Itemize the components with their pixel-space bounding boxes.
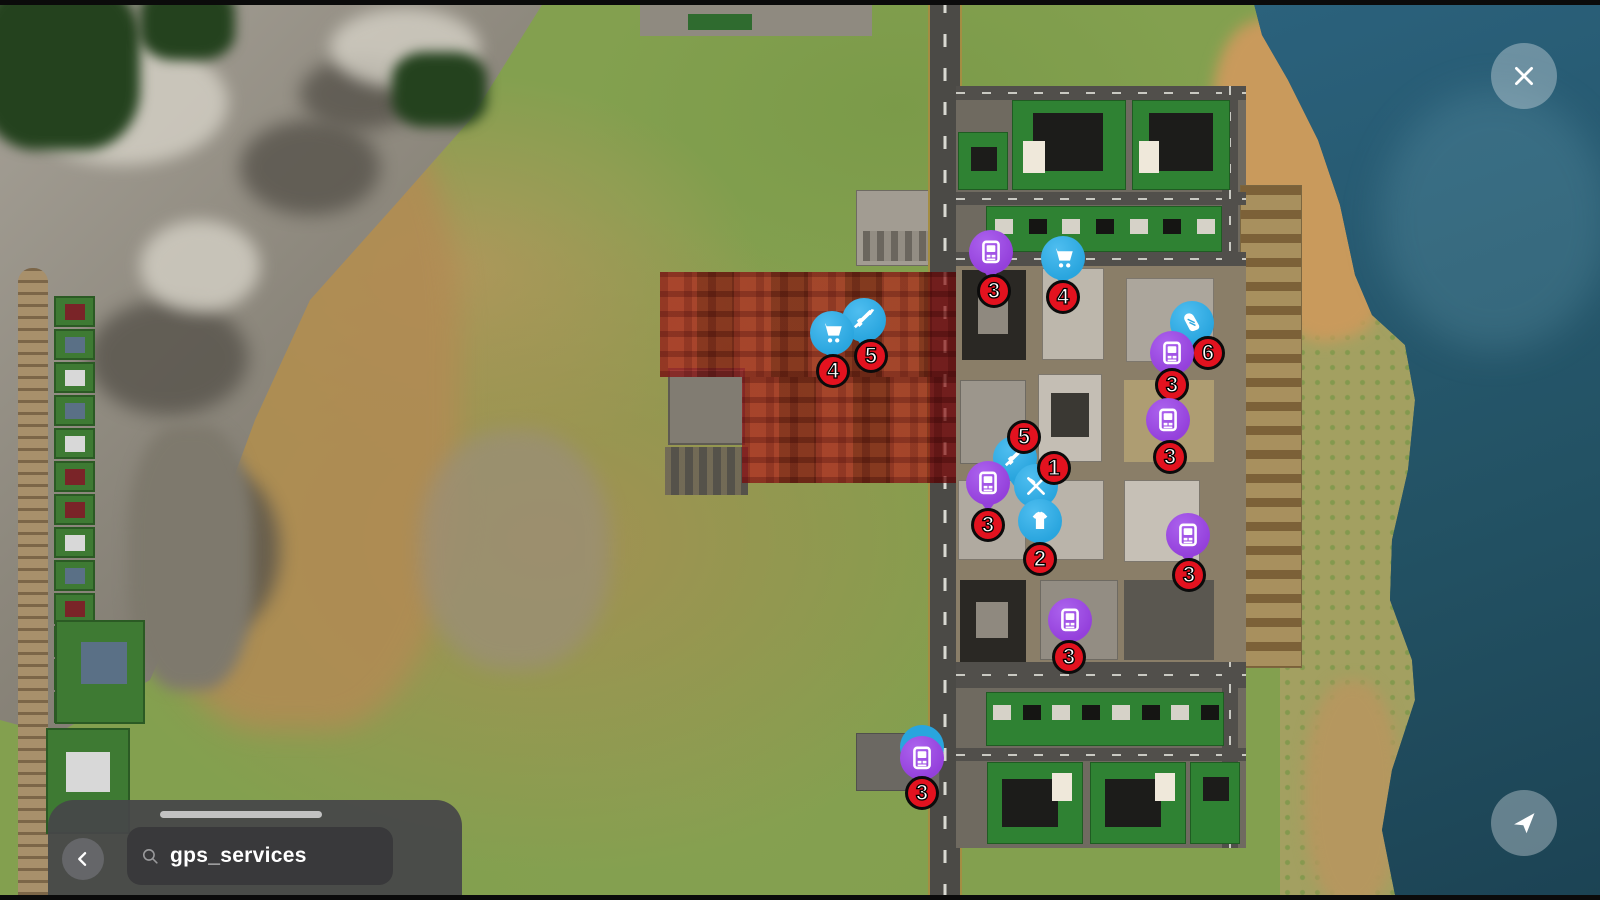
map-marker-atm[interactable]: 3: [969, 230, 1013, 274]
search-input[interactable]: gps_services: [127, 827, 393, 885]
search-icon: [141, 847, 160, 866]
map-marker-atm[interactable]: 3: [1150, 331, 1194, 375]
map-marker-atm[interactable]: 3: [966, 461, 1010, 505]
marker-count-badge: 4: [1046, 280, 1080, 314]
atm-icon: [1057, 607, 1083, 633]
chevron-left-icon: [73, 849, 93, 869]
tshirt-icon: [1027, 508, 1053, 534]
navigation-arrow-icon: [1510, 809, 1538, 837]
atm-icon: [909, 745, 935, 771]
marker-count-badge: 3: [977, 274, 1011, 308]
atm-icon: [978, 239, 1004, 265]
sheet-drag-handle[interactable]: [160, 811, 322, 818]
map-marker-atm[interactable]: 3: [1146, 398, 1190, 442]
marker-balloon: [1041, 236, 1085, 280]
marker-count-badge: 3: [1155, 368, 1189, 402]
map-marker-atm[interactable]: 3: [1166, 513, 1210, 557]
map-marker-atm[interactable]: 3: [900, 736, 944, 780]
map-marker-market[interactable]: 4: [810, 311, 854, 355]
marker-count-badge: 3: [905, 776, 939, 810]
marker-count-badge: 3: [1153, 440, 1187, 474]
markers-layer: 5 4 3 4 6 3: [0, 0, 1600, 900]
map-marker-atm[interactable]: 3: [1048, 598, 1092, 642]
marker-count-badge: 3: [1052, 640, 1086, 674]
search-value: gps_services: [170, 844, 307, 868]
marker-balloon: [969, 230, 1013, 274]
marker-count-badge: 6: [1191, 336, 1225, 370]
atm-icon: [1159, 340, 1185, 366]
atm-icon: [1155, 407, 1181, 433]
marker-balloon: [1048, 598, 1092, 642]
marker-count-badge: 3: [1172, 558, 1206, 592]
back-button[interactable]: [62, 838, 104, 880]
close-button[interactable]: [1491, 43, 1557, 109]
locate-button[interactable]: [1491, 790, 1557, 856]
marker-balloon: [966, 461, 1010, 505]
map-marker-market[interactable]: 4: [1041, 236, 1085, 280]
marker-balloon: [810, 311, 854, 355]
cart-icon: [1050, 245, 1076, 271]
marker-count-badge: 2: [1023, 542, 1057, 576]
atm-icon: [1175, 522, 1201, 548]
marker-count-badge: 5: [1007, 420, 1041, 454]
cart-icon: [819, 320, 845, 346]
marker-balloon: [1146, 398, 1190, 442]
marker-count-badge: 3: [971, 508, 1005, 542]
rifle-icon: [851, 307, 877, 333]
marker-count-badge: 5: [854, 339, 888, 373]
game-screen: 5 4 3 4 6 3: [0, 0, 1600, 900]
marker-count-badge: 4: [816, 354, 850, 388]
close-icon: [1511, 63, 1537, 89]
bottom-letterbox: [0, 895, 1600, 900]
marker-balloon: [1018, 499, 1062, 543]
map-marker-clothes-shop[interactable]: 2: [1018, 499, 1062, 543]
atm-icon: [975, 470, 1001, 496]
marker-balloon: [900, 736, 944, 780]
marker-count-badge: 1: [1037, 451, 1071, 485]
marker-balloon: [1166, 513, 1210, 557]
top-letterbox: [0, 0, 1600, 5]
